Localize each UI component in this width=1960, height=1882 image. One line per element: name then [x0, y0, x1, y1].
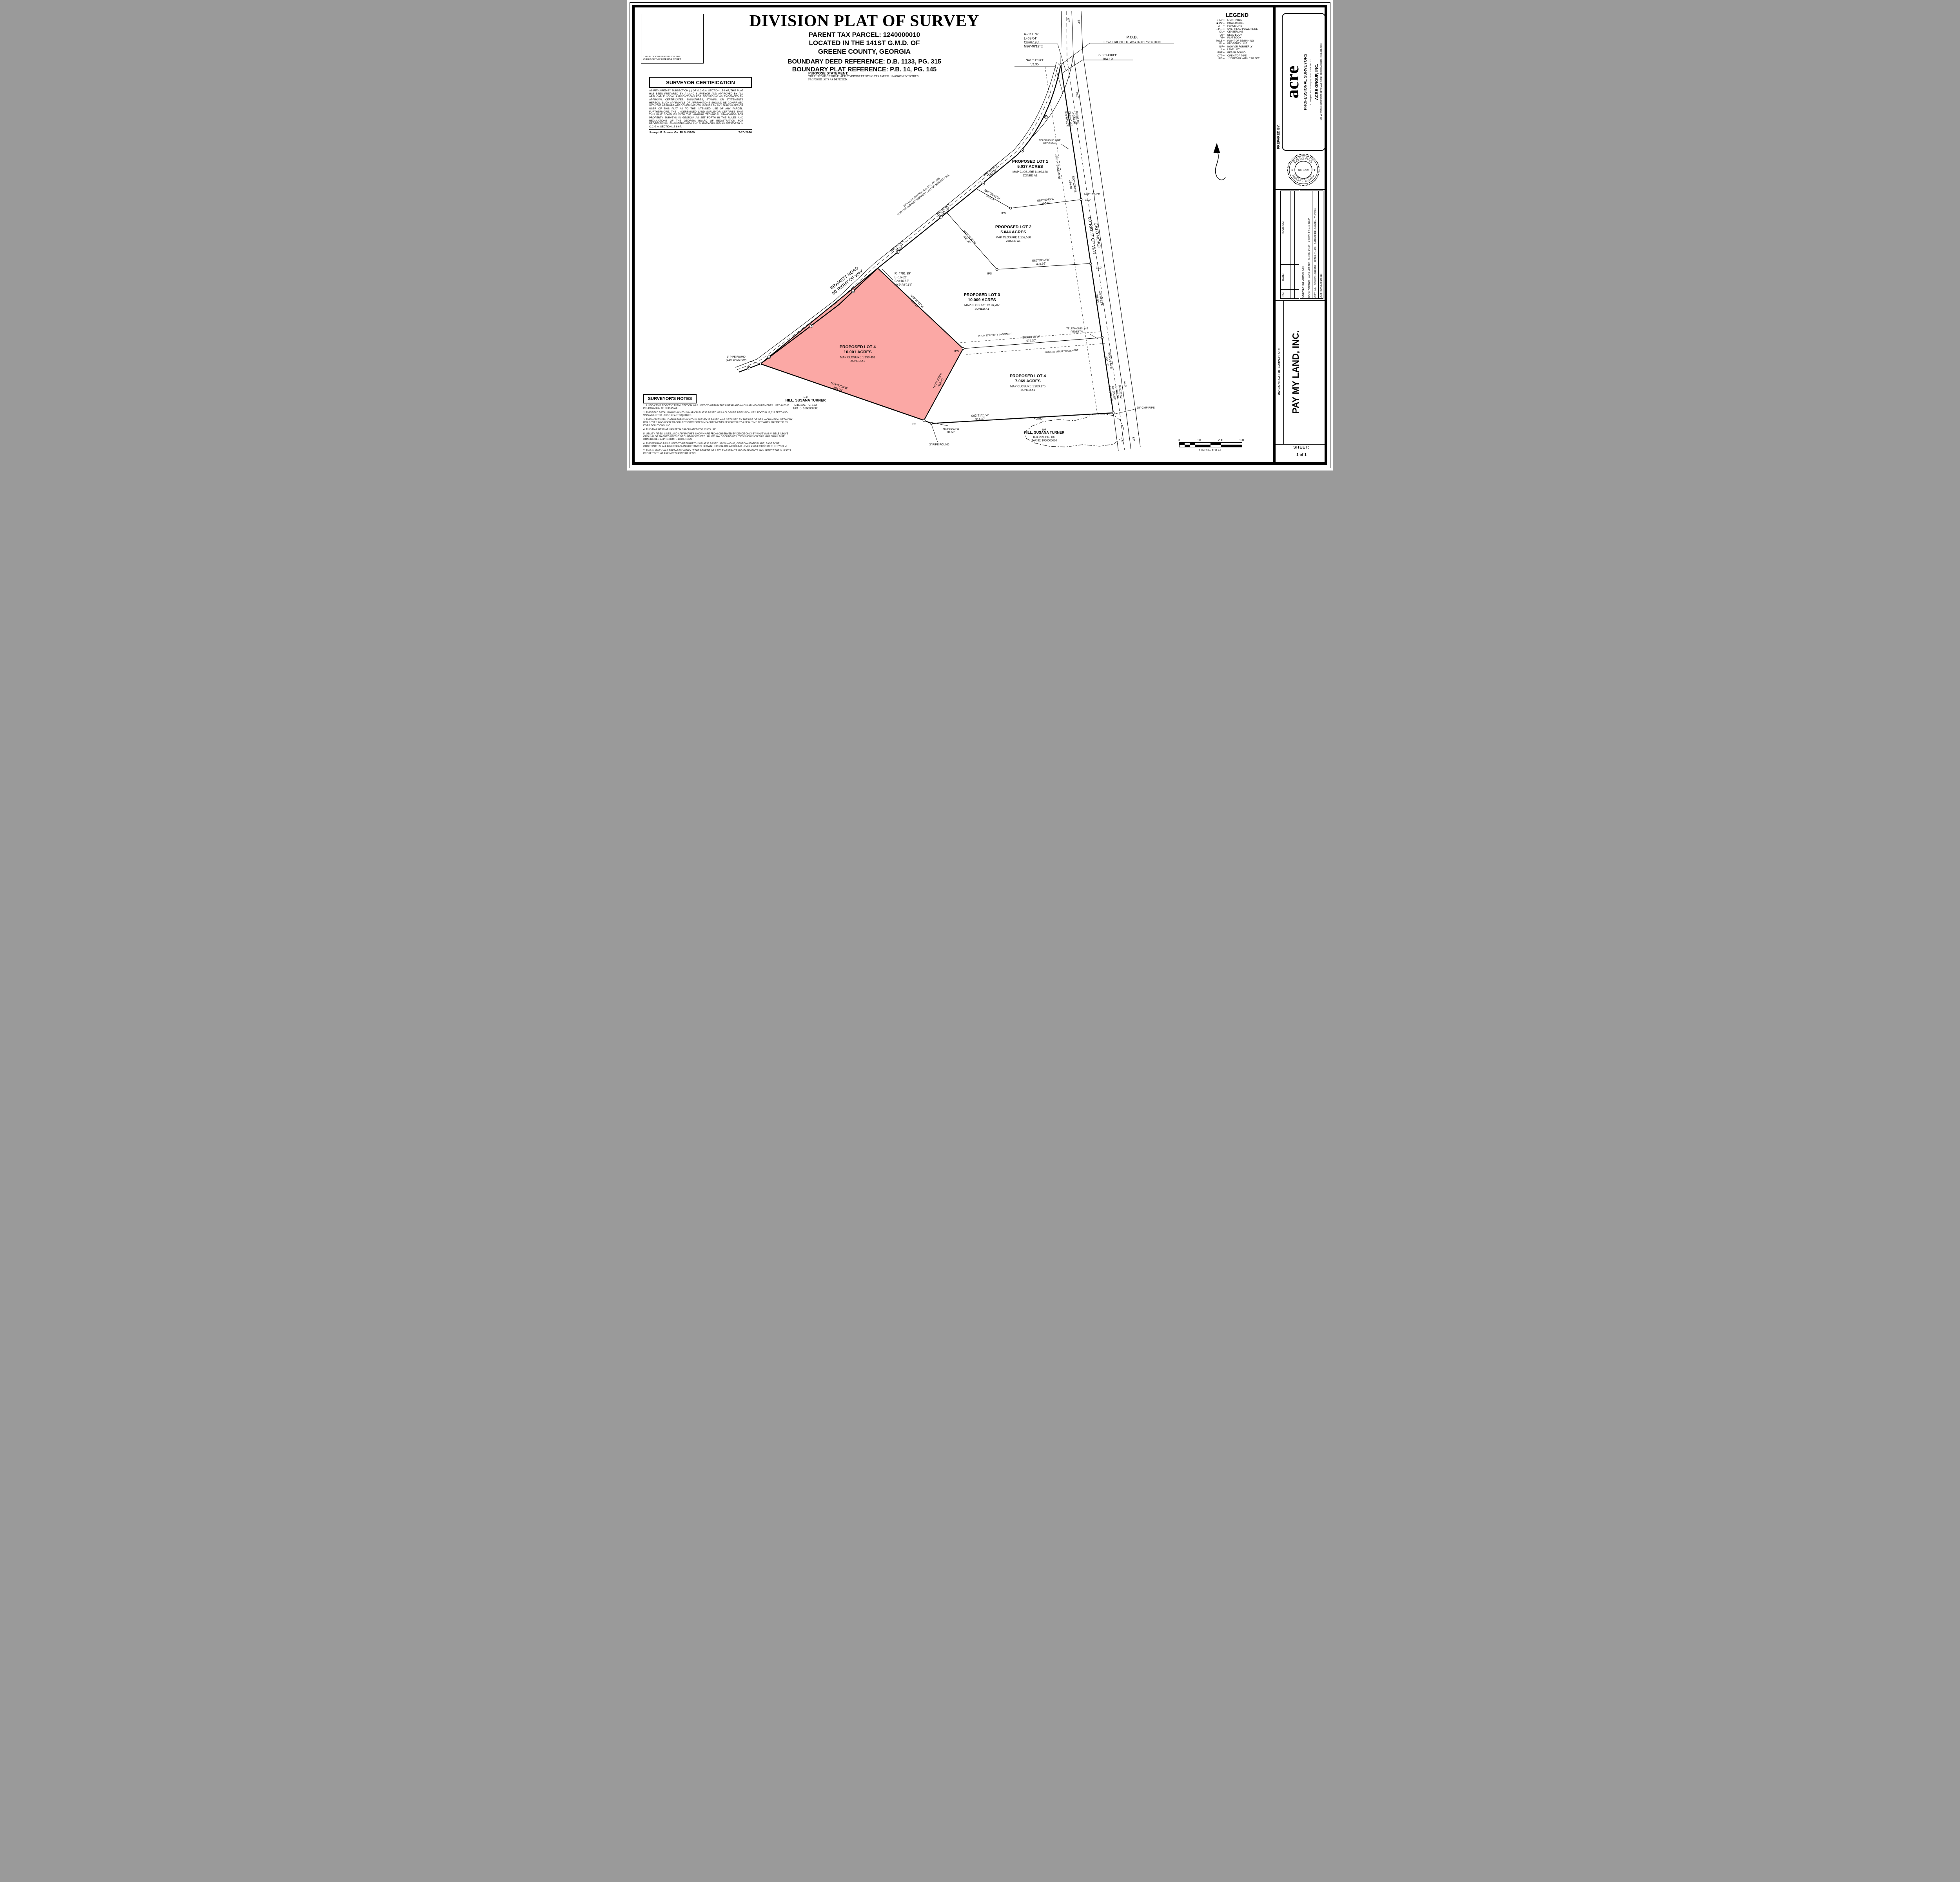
legend-key: IPS =: [1204, 57, 1225, 60]
survey-info-field: DATE: 7/20/2020: [1308, 280, 1310, 298]
map-label: CATO ROAD80' RIGHT OF WAY: [1087, 216, 1102, 255]
scale-cell: [1195, 443, 1200, 445]
survey-info-field: COUNTY: GREENE: [1314, 265, 1317, 285]
surveyor-note: 2. THE FIELD DATA UPON WHICH THIS MAP OR…: [643, 411, 793, 417]
legend-item: —X— =FENCE LINE: [1204, 25, 1270, 28]
sidebar-separator: [1273, 5, 1276, 465]
monument-marker-icon: [1080, 198, 1082, 201]
located-line: LOCATED IN THE 141ST G.M.D. OF: [698, 39, 1031, 47]
plat-line: [1214, 144, 1220, 153]
scale-cell: [1221, 443, 1242, 445]
scale-cell: [1195, 445, 1200, 447]
legend-key: N/F=: [1204, 45, 1225, 49]
purpose-statement: PURPOSE STATEMENT: THE PURPOSE OF THIS P…: [808, 71, 938, 82]
purpose-heading: PURPOSE STATEMENT:: [808, 71, 938, 75]
map-label: S08°10'01"E234.48': [1068, 176, 1077, 193]
scale-cell: [1221, 445, 1242, 447]
power-pole-icon: [747, 366, 750, 369]
monument-marker-icon: [1089, 262, 1092, 265]
seal-star-left-icon: ★: [1291, 169, 1293, 172]
map-label: TELEPHONE LINEPEDESTAL: [1039, 139, 1061, 145]
legend-value: DEED BOOK: [1227, 34, 1242, 37]
map-label: S08°04'32"E308.85': [1094, 289, 1104, 307]
firm-license: A Georgia Land Surveying Firm: LSF# 0011…: [1309, 15, 1313, 149]
map-label: UTILITY EASEMENT: [1054, 153, 1060, 180]
legend-key: DB=: [1204, 34, 1225, 37]
plat-for-divider: [1283, 300, 1284, 444]
legend: LEGEND ☼ LP =LIGHT POLE◉ PP =POWER POLE—…: [1204, 12, 1270, 60]
notes-header: SURVEYOR'S NOTES: [643, 394, 697, 403]
legend-item: C/L=CENTERLINE: [1204, 31, 1270, 34]
legend-value: OVERHEAD POWER LINE: [1227, 28, 1258, 31]
legend-item: RBF =REBAR FOUND: [1204, 51, 1270, 54]
scale-cell: [1190, 445, 1195, 447]
legend-key: P/L=: [1204, 42, 1225, 45]
scale-cell: [1185, 445, 1190, 447]
notes-heading-text: SURVEYOR'S NOTES: [648, 396, 692, 401]
monument-marker-icon: [1112, 412, 1114, 414]
legend-key: RBF =: [1204, 51, 1225, 54]
survey-info-field: G.M.D.: 141ST: [1308, 245, 1310, 260]
monument-marker-icon: [1060, 64, 1062, 66]
monument-marker-icon: [759, 363, 762, 365]
county-line: GREENE COUNTY, GEORGIA: [698, 47, 1031, 56]
title-block: DIVISION PLAT OF SURVEY PARENT TAX PARCE…: [698, 12, 1031, 74]
plat-sheet: P.O.B.IPS AT RIGHT OF WAY INTERSECTIONS0…: [627, 0, 1333, 470]
survey-info-field: CITY: N/A: [1314, 287, 1317, 298]
map-label: S83°18'18"W572.30': [1022, 334, 1040, 343]
plat-line: [1063, 60, 1133, 73]
map-label: 1" PIPE FOUND(5.80' BACK R/W): [726, 356, 746, 362]
map-label: E/P: [1067, 18, 1070, 22]
revision-col-rev: REVISION:: [1281, 191, 1286, 265]
prepared-by-label: PREPARED BY:: [1276, 16, 1280, 149]
power-pole-icon: [810, 324, 813, 327]
plat-line: [1215, 150, 1218, 177]
scale-cell: [1190, 443, 1195, 445]
deed-reference: BOUNDARY DEED REFERENCE: D.B. 1133, PG. …: [698, 58, 1031, 66]
power-pole-icon: [982, 182, 985, 185]
legend-item: P.O.B.=POINT OF BEGINNING: [1204, 40, 1270, 43]
map-label: R=387.81'L=244.26'Ch=240.40'S09°01'30"E: [1064, 109, 1080, 127]
map-label: R=4791.99'L=16.62'Ch=16.62'N47°38'24"E: [895, 272, 912, 287]
map-label: 15.0': [1096, 267, 1102, 269]
plat-for-label: DIVISION PLAT OF SURVEY FOR:: [1277, 302, 1282, 441]
firm-logo: acre: [1283, 15, 1303, 149]
revision-row-cell: [1290, 290, 1295, 299]
map-label: PROPOSED LOT 47.069 ACRESMAP CLOSURE 1:2…: [1010, 374, 1046, 392]
scale-tick-200: 200: [1218, 438, 1223, 442]
legend-key: LL =: [1204, 48, 1225, 51]
survey-information: SURVEY INFORMATION: DATE: 7/20/2020LAND …: [1300, 191, 1323, 299]
legend-value: LAND LOT: [1227, 48, 1240, 51]
seal-number: No. 3209: [1298, 169, 1309, 172]
scale-cell: [1210, 443, 1221, 445]
legend-item: OTP =OPEN TOP PIPE: [1204, 54, 1270, 58]
legend-item: ◉ PP =POWER POLE: [1204, 22, 1270, 25]
seal-star-right-icon: ★: [1313, 169, 1316, 172]
surveyor-note: 3. THE HORIZONTAL DATUM FOR WHICH THIS S…: [643, 418, 793, 427]
map-label: S85°50'10"W429.69': [1032, 258, 1050, 266]
signature-date: 7-20-2020: [739, 131, 752, 134]
sidebar-divider-3: [1276, 444, 1327, 445]
firm-address: 139 W WASHINGTON STREET | MADISON | GEOR…: [1320, 15, 1324, 149]
legend-key: P.O.B.=: [1204, 40, 1225, 43]
map-label: N/FHILL, SUSANA TURNERD.B. 209, PG. 183T…: [1024, 429, 1065, 442]
scale-tick-100: 100: [1197, 438, 1202, 442]
sheet-value: 1 of 1: [1276, 453, 1327, 457]
map-label: PROPOSED LOT 310.009 ACRESMAP CLOSURE 1:…: [964, 292, 1000, 311]
scale-tick-300: 300: [1239, 438, 1244, 442]
firm-company: ACRE GROUP, INC.: [1315, 15, 1320, 149]
surveyor-seal: GEORGIA REGISTERED No. 3209 LAND SURVEYO…: [1287, 153, 1320, 187]
proposed-lot-4-parcel: [760, 268, 963, 420]
map-label: IPS: [912, 423, 916, 426]
certification-heading-text: SURVEYOR CERTIFICATION: [666, 80, 735, 85]
parent-parcel: PARENT TAX PARCEL: 1240000010: [698, 31, 1031, 39]
map-label: IPS: [987, 272, 992, 275]
scale-caption: 1 INCH= 100 FT.: [1179, 449, 1242, 452]
map-label: N47°36'30"W445.30': [960, 230, 977, 248]
scale-tick-0: 0: [1178, 438, 1180, 442]
map-label: R=2272.52'L=202.66'Ch=202.58'S04°38'08"E: [1108, 384, 1123, 401]
survey-info-field: SCALE: 1"=100: [1314, 247, 1317, 263]
legend-value: OPEN TOP PIPE: [1227, 54, 1247, 58]
legend-value: PLAT BOOK: [1227, 36, 1241, 40]
plat-line: [1114, 409, 1134, 414]
surveyor-note: 7. THIS SURVEY WAS PREPARED WITHOUT THE …: [643, 449, 793, 455]
monument-marker-icon: [962, 347, 964, 350]
sidebar-divider-1: [1276, 189, 1327, 190]
survey-info-field: DATE OF FIELD WORK: 7/15/2020: [1314, 208, 1317, 244]
legend-item: DB=DEED BOOK: [1204, 34, 1270, 37]
legend-item: —P— =OVERHEAD POWER LINE: [1204, 28, 1270, 31]
map-label: 3" PIPE FOUND: [929, 443, 949, 446]
monument-marker-icon: [996, 268, 998, 271]
map-label: 40.0': [1075, 92, 1079, 98]
map-label: N73°50'03"W34.53': [943, 427, 959, 434]
legend-item: LL =LAND LOT: [1204, 48, 1270, 51]
revision-row-cell: [1295, 290, 1299, 299]
scale-bar-row2: [1179, 445, 1242, 447]
sheet-title: DIVISION PLAT OF SURVEY: [698, 12, 1031, 31]
signer-name: Joseph P. Brewer Ga. RLS #3209: [649, 131, 695, 134]
power-pole-icon: [851, 290, 855, 293]
plat-line: [1061, 43, 1174, 65]
map-label: E/P: [1132, 437, 1135, 441]
client-name: PAY MY LAND, INC.: [1290, 302, 1324, 442]
plat-line: [1072, 11, 1131, 449]
map-label: P.O.B.IPS AT RIGHT OF WAY INTERSECTION: [1103, 35, 1161, 44]
power-pole-icon: [768, 356, 771, 359]
legend-value: CENTERLINE: [1227, 31, 1243, 34]
clerk-box-text-line1: THIS BLOCK RESERVED FOR THE: [643, 56, 681, 58]
sheet-number-block: SHEET: 1 of 1: [1276, 445, 1327, 457]
map-label: N45°51'46"E167.15': [936, 202, 953, 218]
legend-title: LEGEND: [1204, 12, 1270, 18]
notes-list: 1. A LEICA TS12 ROBOTIC TOTAL STATION WA…: [643, 404, 793, 456]
plat-line: [1113, 413, 1118, 451]
surveyor-note: 6. THE BEARING BASIS USED TO PREPARE THI…: [643, 442, 793, 448]
map-label: 40.0': [1123, 381, 1127, 387]
plat-line: [931, 424, 938, 442]
certification-body: AS REQUIRED BY SUBSECTION (d) OF O.C.G.A…: [649, 89, 743, 129]
legend-key: C/L=: [1204, 31, 1225, 34]
revision-col-no: NO.: [1281, 290, 1286, 299]
surveyor-note: 5. UTILITY PIPES, LINES, AND APPARATUS'S…: [643, 432, 793, 441]
map-label: PROPOSED LOT 15.037 ACRESMAP CLOSURE 1:1…: [1012, 159, 1048, 177]
purpose-body: THE PURPOSE OF THIS PLAT IS TO DIVIDE EX…: [808, 75, 926, 82]
power-pole-icon: ◉ PP =: [1204, 22, 1225, 25]
map-label: PROP. 30' UTILITY EASEMENT: [1045, 349, 1078, 354]
sheet-label: SHEET:: [1276, 445, 1327, 450]
scale-cell: [1200, 445, 1210, 447]
survey-info-field: LAND LOT: N/A: [1308, 262, 1310, 278]
scale-cell: [1200, 443, 1210, 445]
legend-value: NOW OR FORMERLY: [1227, 45, 1252, 49]
legend-item: PB=PLAT BOOK: [1204, 36, 1270, 40]
scale-cell: [1180, 443, 1185, 445]
legend-item: IPS =1/2" REBAR WITH CAP SET: [1204, 57, 1270, 60]
power-line-icon: —P— =: [1204, 28, 1225, 31]
legend-value: PROPERTY LINE: [1227, 42, 1247, 45]
legend-value: 1/2" REBAR WITH CAP SET: [1227, 57, 1259, 60]
power-pole-icon: [939, 215, 942, 218]
legend-key: PB=: [1204, 36, 1225, 40]
map-label: PROPOSED LOT 25.044 ACRESMAP CLOSURE 1:1…: [995, 225, 1031, 243]
map-label: IPS: [1002, 212, 1006, 215]
fence-line-icon: —X— =: [1204, 25, 1225, 28]
map-label: N87°10'01"E: [1084, 193, 1100, 196]
light-pole-icon: ☼ LP =: [1204, 19, 1225, 22]
legend-key: OTP =: [1204, 54, 1225, 58]
legend-item: ☼ LP =LIGHT POLE: [1204, 19, 1270, 22]
clerk-reservation-box: THIS BLOCK RESERVED FOR THE CLERK OF THE…: [641, 14, 704, 64]
firm-tagline: PROFESSIONAL SURVEYORS: [1303, 15, 1309, 149]
certification-signature: Joseph P. Brewer Ga. RLS #3209 7-20-2020: [649, 129, 752, 134]
legend-value: REBAR FOUND: [1227, 51, 1246, 54]
revision-col-date: DATE:: [1281, 265, 1286, 290]
legend-item: N/F=NOW OR FORMERLY: [1204, 45, 1270, 49]
legend-value: POINT OF BEGINNING: [1227, 40, 1254, 43]
map-label: POND: [1033, 417, 1042, 420]
map-label: S06°08'44"E208.72': [1104, 352, 1113, 369]
legend-item: P/L=PROPERTY LINE: [1204, 42, 1270, 45]
legend-value: FENCE LINE: [1227, 25, 1242, 28]
monument-marker-icon: [1101, 336, 1103, 339]
clerk-box-text-line2: CLERK OF THE SUPERIOR COURT.: [643, 58, 681, 61]
surveyor-note: 1. A LEICA TS12 ROBOTIC TOTAL STATION WA…: [643, 404, 793, 410]
monument-marker-icon: [923, 419, 925, 421]
scale-cell: [1185, 443, 1190, 445]
map-label: IPS: [955, 350, 959, 353]
plat-line: [1217, 177, 1225, 180]
legend-value: LIGHT POLE: [1227, 19, 1242, 22]
survey-info-field: DRAWN BY: J. pHILLIP: [1308, 218, 1310, 242]
map-label: E/P: [1121, 440, 1124, 444]
power-pole-icon: [1021, 149, 1024, 152]
plat-line: [966, 343, 1105, 354]
scale-cell: [1210, 445, 1221, 447]
firm-box: acre PROFESSIONAL SURVEYORS A Georgia La…: [1282, 13, 1326, 151]
monument-marker-icon: [1009, 207, 1012, 209]
map-label: S02°14'00"E104.19': [1098, 53, 1117, 61]
survey-info-field: JOB NUMBER: 20-313: [1320, 274, 1323, 298]
surveyor-note: 4. THIS MAP OR PLAT HAS BEEN CALCULATED …: [643, 428, 793, 431]
plat-line: [1062, 144, 1069, 149]
map-label: PROP. 30' UTILITY EASEMENT: [978, 333, 1012, 338]
scale-bar-row1: [1179, 442, 1242, 445]
survey-info-heading: SURVEY INFORMATION:: [1300, 191, 1306, 298]
scale-cell: [1180, 445, 1185, 447]
certification-header: SURVEYOR CERTIFICATION: [649, 77, 752, 88]
scale-bar: 0 100 200 300 1 INCH= 100 FT.: [1179, 438, 1246, 452]
map-label: E/P: [1077, 20, 1080, 24]
power-pole-icon: [1044, 115, 1047, 118]
monument-marker-icon: [930, 422, 933, 425]
revision-table: NO. DATE: REVISION:: [1280, 191, 1299, 299]
map-label: 15.0': [1085, 199, 1091, 202]
revision-row-cell: [1286, 290, 1290, 299]
legend-value: POWER POLE: [1227, 22, 1244, 25]
map-label: 18" CMP PIPE: [1137, 407, 1155, 409]
